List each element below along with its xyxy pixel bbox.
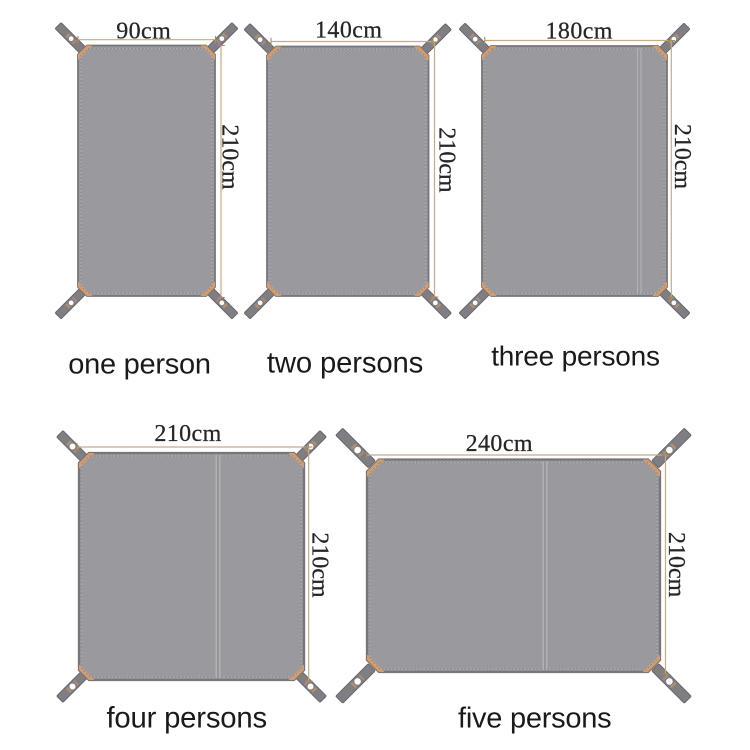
svg-text:210cm: 210cm bbox=[669, 124, 695, 190]
svg-text:90cm: 90cm bbox=[116, 19, 171, 45]
svg-text:210cm: 210cm bbox=[663, 532, 689, 598]
svg-text:four persons: four persons bbox=[106, 701, 266, 734]
svg-text:five persons: five persons bbox=[458, 702, 611, 734]
svg-text:210cm: 210cm bbox=[217, 124, 243, 190]
svg-text:140cm: 140cm bbox=[315, 18, 382, 44]
svg-text:240cm: 240cm bbox=[466, 431, 533, 457]
svg-text:180cm: 180cm bbox=[546, 19, 613, 45]
svg-text:two persons: two persons bbox=[267, 346, 423, 379]
svg-text:210cm: 210cm bbox=[307, 532, 333, 598]
svg-text:210cm: 210cm bbox=[434, 127, 460, 193]
svg-text:210cm: 210cm bbox=[154, 421, 221, 447]
svg-text:one person: one person bbox=[68, 348, 211, 380]
svg-text:three persons: three persons bbox=[491, 340, 660, 371]
